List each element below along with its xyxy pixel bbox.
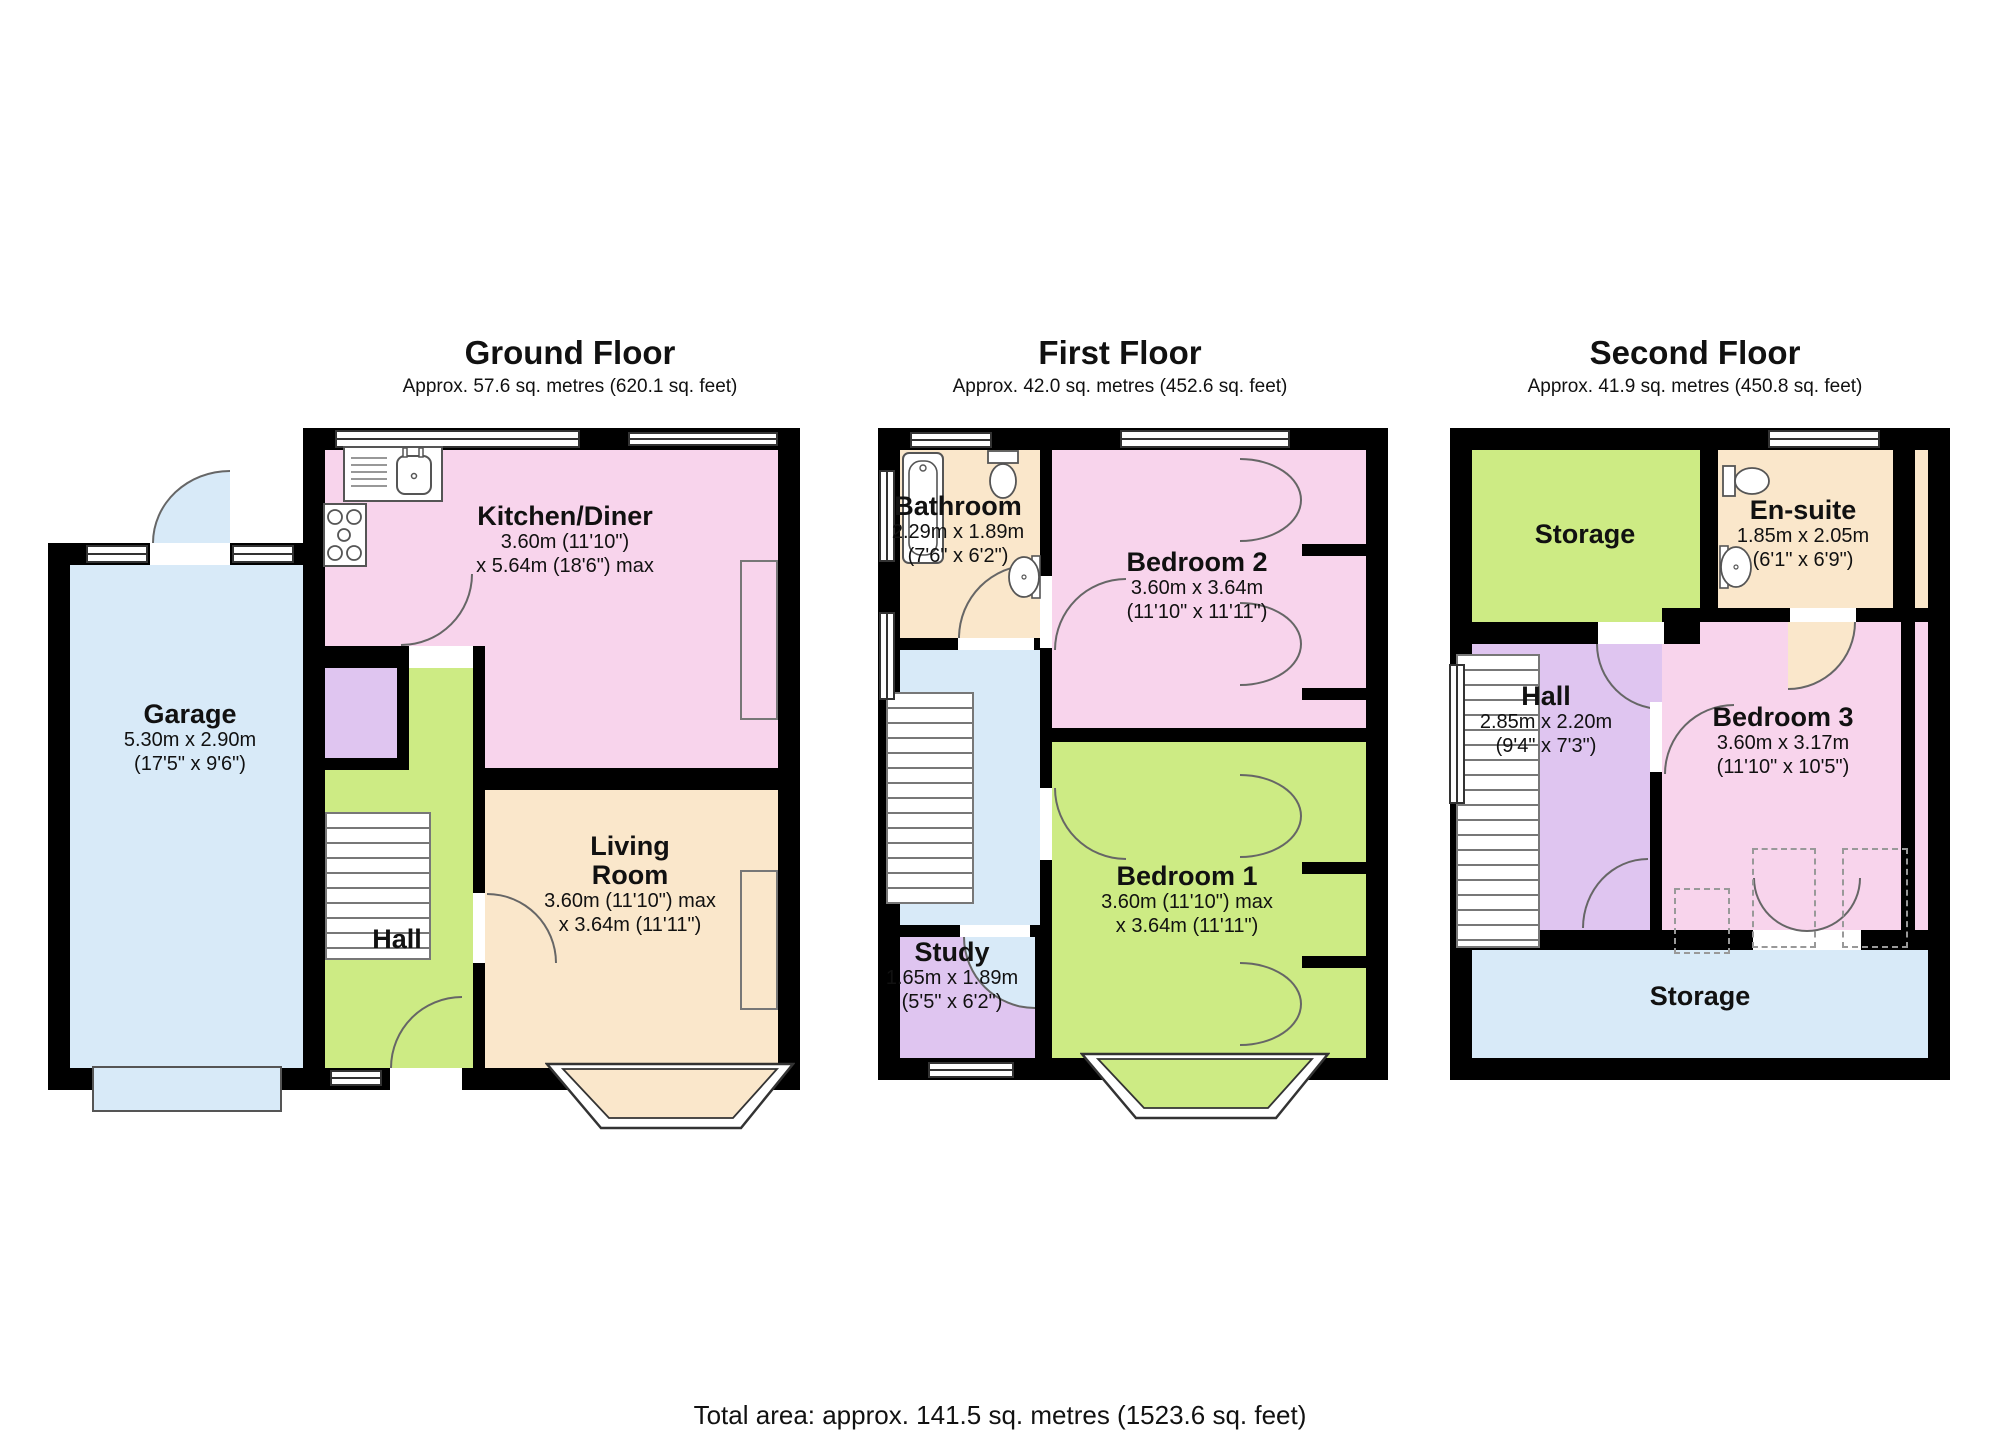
bay-window bbox=[545, 1062, 795, 1142]
door-opening bbox=[958, 638, 1034, 650]
room-hall bbox=[409, 668, 473, 770]
second-floor-subtitle: Approx. 41.9 sq. metres (450.8 sq. feet) bbox=[1495, 376, 1895, 398]
door-opening bbox=[1790, 608, 1856, 622]
furniture-outline bbox=[1674, 888, 1730, 954]
window bbox=[232, 545, 294, 563]
stairs bbox=[886, 692, 974, 904]
wall bbox=[473, 646, 485, 1068]
storage-top-label: Storage bbox=[1490, 520, 1680, 549]
door-arc bbox=[152, 470, 230, 543]
bedroom1-label: Bedroom 1 3.60m (11'10") max x 3.64m (11… bbox=[1037, 862, 1337, 938]
bedroom3-label: Bedroom 3 3.60m x 3.17m (11'10" x 10'5") bbox=[1658, 703, 1908, 779]
sink-icon bbox=[343, 446, 443, 502]
floorplan-canvas: Ground Floor Approx. 57.6 sq. metres (62… bbox=[0, 0, 2000, 1455]
living-room-label: Living Room 3.60m (11'10") max x 3.64m (… bbox=[505, 832, 755, 938]
total-area-text: Total area: approx. 141.5 sq. metres (15… bbox=[0, 1400, 2000, 1431]
storage-bottom-label: Storage bbox=[1600, 982, 1800, 1011]
bay-window bbox=[1080, 1052, 1330, 1132]
hall2-label: Hall 2.85m x 2.20m (9'4" x 7'3") bbox=[1446, 682, 1646, 758]
hob-icon bbox=[323, 503, 367, 567]
window bbox=[628, 432, 778, 446]
first-floor-title-block: First Floor Approx. 42.0 sq. metres (452… bbox=[920, 336, 1320, 398]
ensuite-label: En-suite 1.85m x 2.05m (6'1" x 6'9") bbox=[1693, 496, 1913, 572]
garage-threshold bbox=[92, 1066, 282, 1112]
door-opening bbox=[1040, 788, 1052, 860]
hall-label: Hall bbox=[347, 925, 447, 954]
bedroom2-label: Bedroom 2 3.60m x 3.64m (11'10" x 11'11"… bbox=[1057, 548, 1337, 624]
window bbox=[910, 432, 992, 448]
window bbox=[1120, 430, 1290, 448]
window bbox=[330, 1070, 382, 1086]
front-door-opening bbox=[390, 1068, 462, 1090]
door-opening bbox=[1598, 622, 1664, 644]
fitted-unit bbox=[740, 560, 778, 720]
wall bbox=[325, 758, 397, 770]
study-label: Study 1.65m x 1.89m (5'5" x 6'2") bbox=[842, 938, 1062, 1014]
window bbox=[928, 1062, 1014, 1078]
ground-floor-title: Ground Floor bbox=[370, 336, 770, 371]
furniture-outline bbox=[1752, 848, 1816, 948]
garage-label: Garage 5.30m x 2.90m (17'5" x 9'6") bbox=[90, 700, 290, 776]
door-opening bbox=[473, 893, 485, 963]
kitchen-diner-label: Kitchen/Diner 3.60m (11'10") x 5.64m (18… bbox=[425, 502, 705, 578]
window bbox=[879, 612, 895, 700]
door-opening bbox=[150, 543, 230, 565]
first-floor-subtitle: Approx. 42.0 sq. metres (452.6 sq. feet) bbox=[920, 376, 1320, 398]
second-floor-title-block: Second Floor Approx. 41.9 sq. metres (45… bbox=[1495, 336, 1895, 398]
door-opening bbox=[960, 925, 1030, 937]
furniture-outline bbox=[1842, 848, 1908, 948]
wall bbox=[485, 768, 778, 790]
ground-floor-subtitle: Approx. 57.6 sq. metres (620.1 sq. feet) bbox=[370, 376, 770, 398]
door-opening bbox=[409, 646, 473, 668]
first-floor-title: First Floor bbox=[920, 336, 1320, 371]
wall bbox=[1052, 728, 1366, 742]
wall bbox=[1472, 622, 1700, 644]
eaves-space bbox=[1915, 450, 1928, 608]
second-floor-title: Second Floor bbox=[1495, 336, 1895, 371]
wall bbox=[1302, 956, 1366, 968]
wall bbox=[1302, 688, 1366, 700]
window bbox=[1768, 430, 1880, 448]
window bbox=[86, 545, 148, 563]
wall bbox=[397, 668, 409, 770]
room-garage bbox=[70, 565, 303, 1068]
ground-floor-title-block: Ground Floor Approx. 57.6 sq. metres (62… bbox=[370, 336, 770, 398]
bathroom-label: Bathroom 2.29m x 1.89m (7'6" x 6'2") bbox=[848, 492, 1068, 568]
room-cupboard bbox=[325, 668, 397, 758]
